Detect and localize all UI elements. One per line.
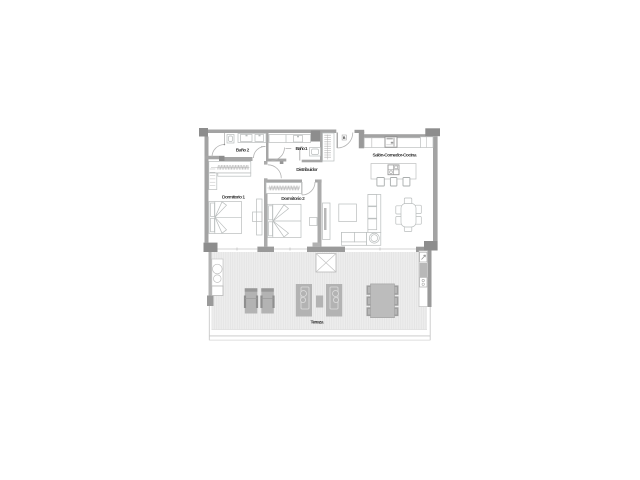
svg-text:Dormitorio 1: Dormitorio 1 (222, 194, 245, 200)
svg-text:Baño 2: Baño 2 (236, 148, 250, 154)
svg-text:Baño 1: Baño 1 (296, 146, 308, 152)
svg-text:Dormitorio 2: Dormitorio 2 (281, 196, 305, 202)
svg-text:Terraza: Terraza (311, 319, 324, 325)
svg-text:B: B (343, 136, 346, 140)
svg-text:Salón-Comedor-Cocina: Salón-Comedor-Cocina (373, 153, 417, 159)
svg-text:Distribuidor: Distribuidor (296, 167, 318, 173)
